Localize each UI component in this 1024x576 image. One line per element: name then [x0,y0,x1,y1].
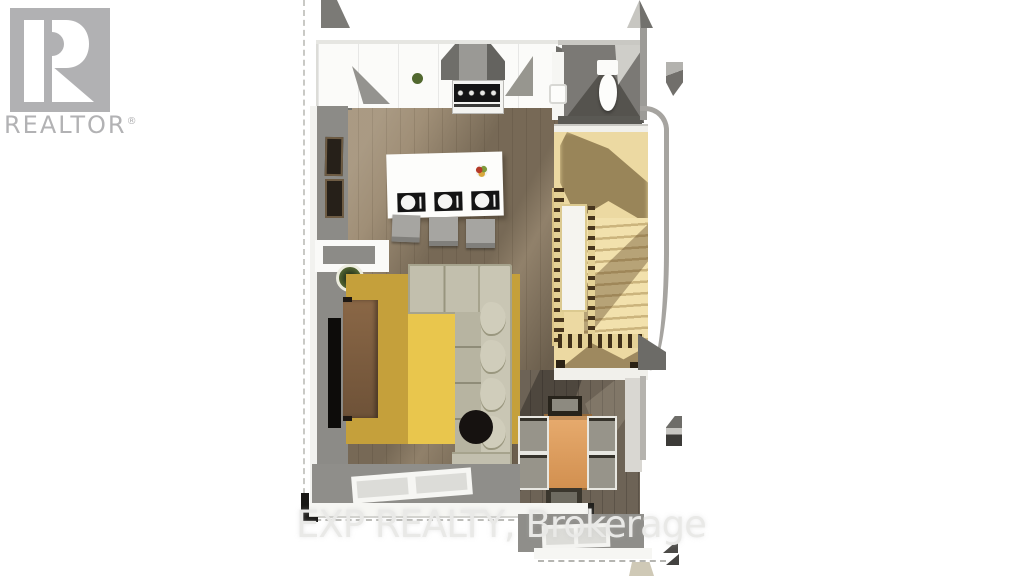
realtor-label-text: REALTOR [4,111,127,139]
dining-chair-seat [589,455,615,488]
oven-door-line [454,104,500,107]
realtor-r-glyph [10,8,110,112]
bar-stool [466,219,495,248]
dining-chairs-left [520,418,547,488]
wall-picture-frame-1 [325,137,344,176]
dining-chair-top [548,396,582,416]
cooktop-burners [454,84,500,102]
console-handle [343,416,352,421]
stair-railing-inner [588,206,595,334]
property-line-dashed-bottom-right [538,560,666,562]
dining-chair-seat [520,455,547,488]
window-pane [357,477,409,498]
wall-picture-frame-2 [325,179,344,218]
property-line-dashed-left [303,0,305,514]
dining-chairs-right [589,418,615,488]
dining-chair-seat [589,418,615,451]
kitchen-island [386,151,504,218]
fruit-bowl-icon [475,165,487,177]
brokerage-watermark: EXP REALTY, Brokerage [296,503,706,546]
entry-door-recess [323,246,375,264]
bar-stool [429,217,458,246]
counter-plant-icon [412,73,423,84]
stair-landing [560,204,587,312]
realtor-watermark-label: REALTOR® [4,111,144,139]
console-handle [343,297,352,302]
place-setting [434,192,462,212]
place-setting [471,191,499,211]
left-exterior-wall-edge [310,106,317,510]
registered-trademark-mark: ® [127,116,137,127]
exterior-wall-bottom-dining [534,548,652,559]
realtor-logo-icon [10,8,110,112]
wall-fragment-marker-bottom [666,416,682,446]
stair-fragment-bottom [629,562,654,576]
corner-marker-top-right [627,0,653,28]
stair-railing-bottom [558,334,644,348]
media-console [343,300,378,418]
dining-chair-seat [552,399,578,411]
corner-marker-top-left [321,0,350,28]
toilet-bowl [599,74,617,111]
dining-chair-seat [520,418,547,451]
round-ottoman [459,410,493,444]
corner-marker-bottom-right-2 [666,554,679,565]
wall-mounted-tv [328,318,341,428]
sofa-chaise-section [408,264,480,314]
stairs-curved-wall [640,106,669,371]
corner-marker-top-right-shadow [627,0,653,28]
floorplan-screenshot: REALTOR® [0,0,1024,576]
wall-fragment-marker-top [666,62,683,96]
window-pane [415,473,467,494]
bar-stool [392,215,421,243]
place-setting [397,193,425,213]
dining-table [544,414,592,490]
toilet-tank [597,60,618,75]
dining-right-wall-strip [640,376,646,460]
vanity-sink [549,84,567,104]
